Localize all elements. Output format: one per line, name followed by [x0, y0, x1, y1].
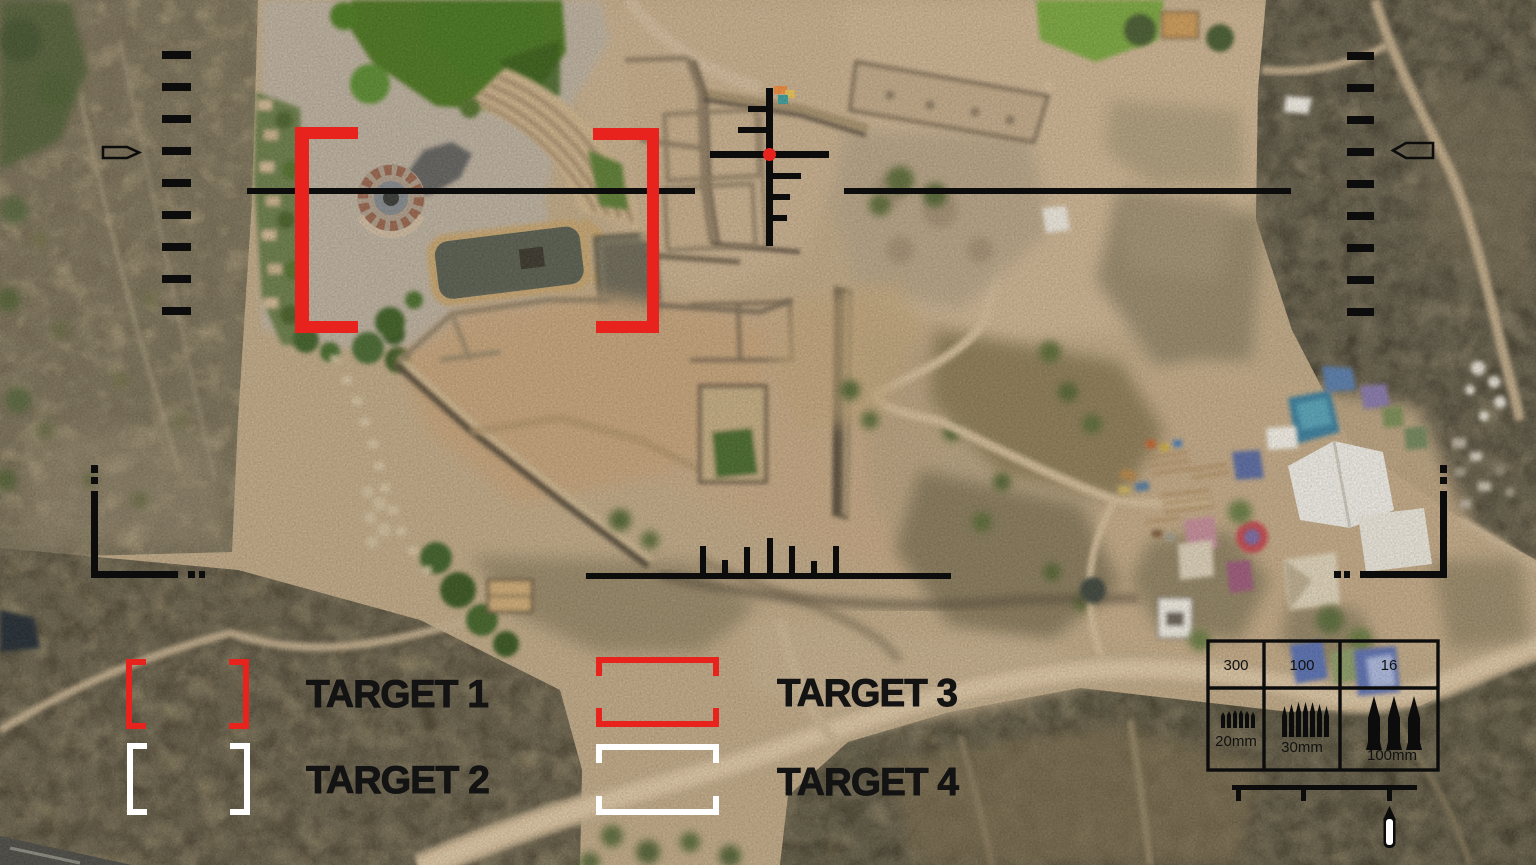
svg-text:30mm: 30mm: [1281, 739, 1323, 756]
svg-text:TARGET 1: TARGET 1: [306, 673, 488, 716]
svg-text:16: 16: [1381, 657, 1398, 674]
svg-text:TARGET 2: TARGET 2: [306, 759, 489, 802]
svg-text:TARGET 3: TARGET 3: [777, 672, 957, 715]
svg-text:100: 100: [1289, 657, 1314, 674]
svg-text:20mm: 20mm: [1215, 733, 1257, 750]
svg-text:TARGET 4: TARGET 4: [777, 761, 959, 804]
svg-text:300: 300: [1223, 657, 1248, 674]
